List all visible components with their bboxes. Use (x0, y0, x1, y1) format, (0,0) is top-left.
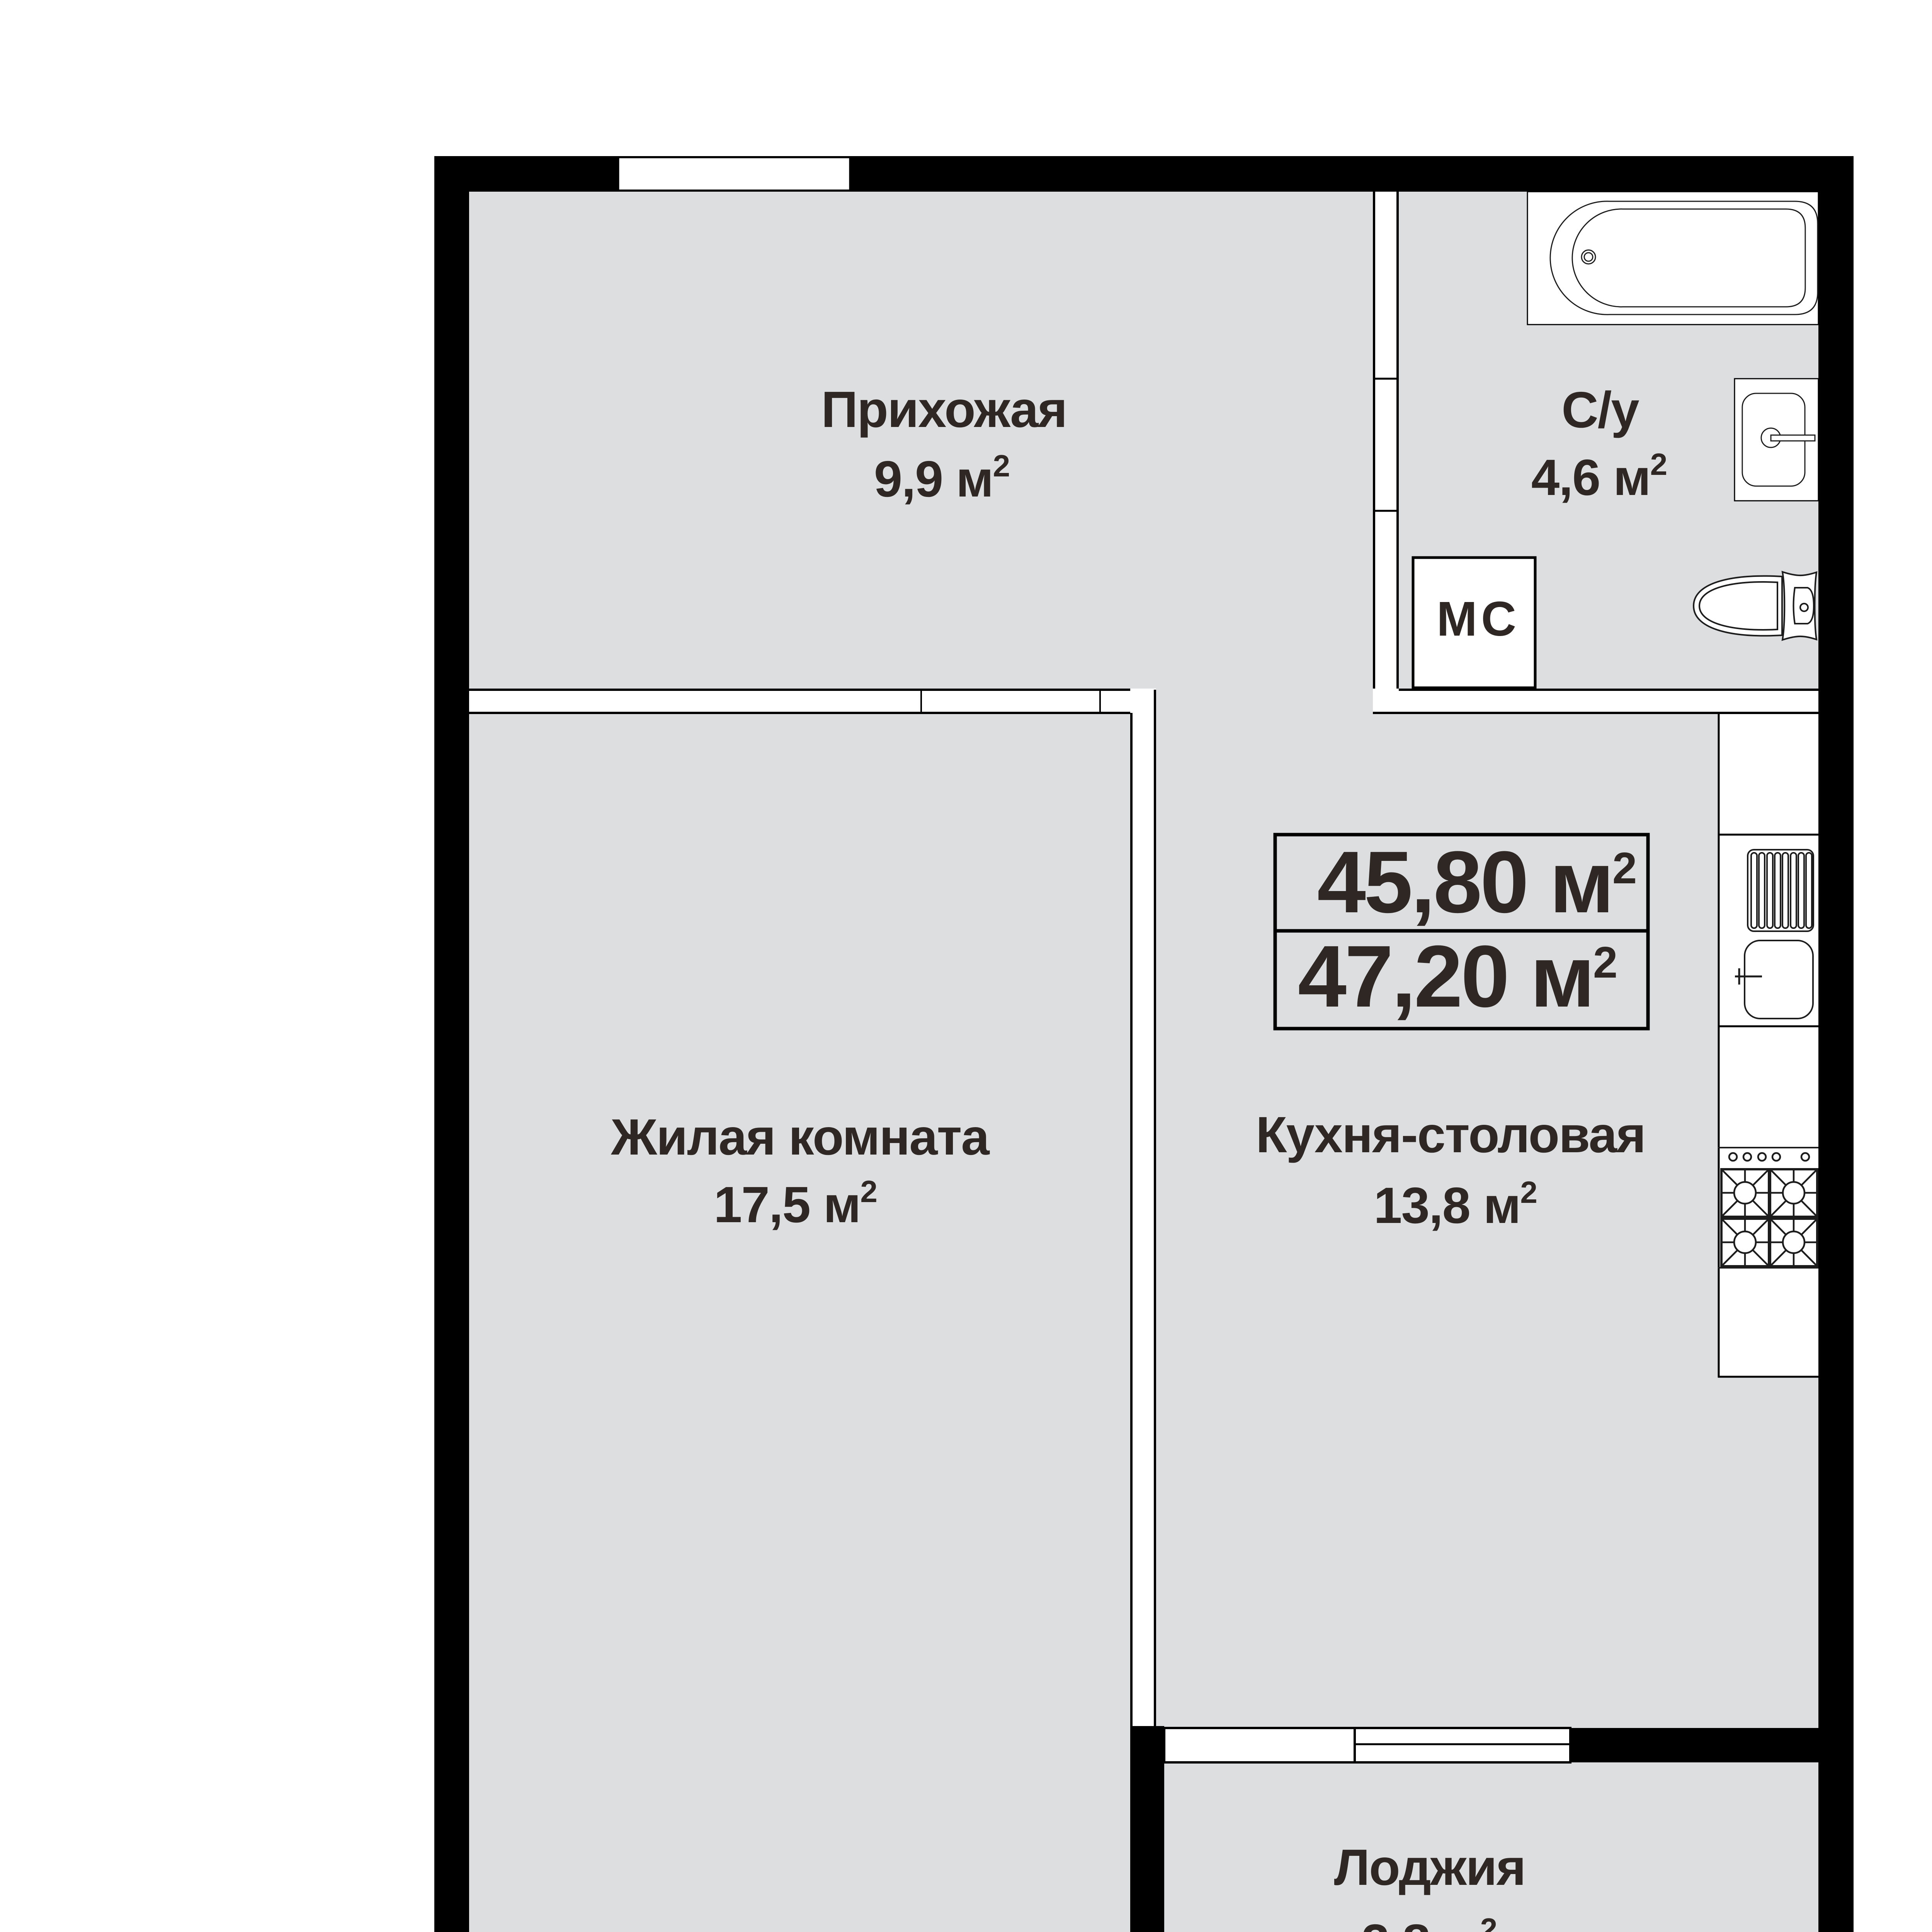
svg-text:13,8 м2: 13,8 м2 (1374, 1175, 1537, 1234)
svg-text:47,20 м2: 47,20 м2 (1298, 928, 1616, 1026)
svg-text:МС: МС (1437, 592, 1520, 646)
svg-text:2,8 м2: 2,8 м2 (1361, 1912, 1497, 1932)
svg-text:Лоджия: Лоджия (1334, 1839, 1525, 1896)
svg-text:9,9 м2: 9,9 м2 (874, 449, 1009, 507)
svg-text:Кухня-столовая: Кухня-столовая (1256, 1106, 1645, 1163)
svg-text:Жилая комната: Жилая комната (611, 1109, 990, 1165)
svg-text:Прихожая: Прихожая (821, 381, 1066, 438)
svg-text:17,5 м2: 17,5 м2 (714, 1174, 877, 1233)
svg-text:С/у: С/у (1561, 381, 1639, 438)
svg-text:4,6 м2: 4,6 м2 (1531, 447, 1667, 506)
svg-text:45,80 м2: 45,80 м2 (1317, 833, 1635, 931)
